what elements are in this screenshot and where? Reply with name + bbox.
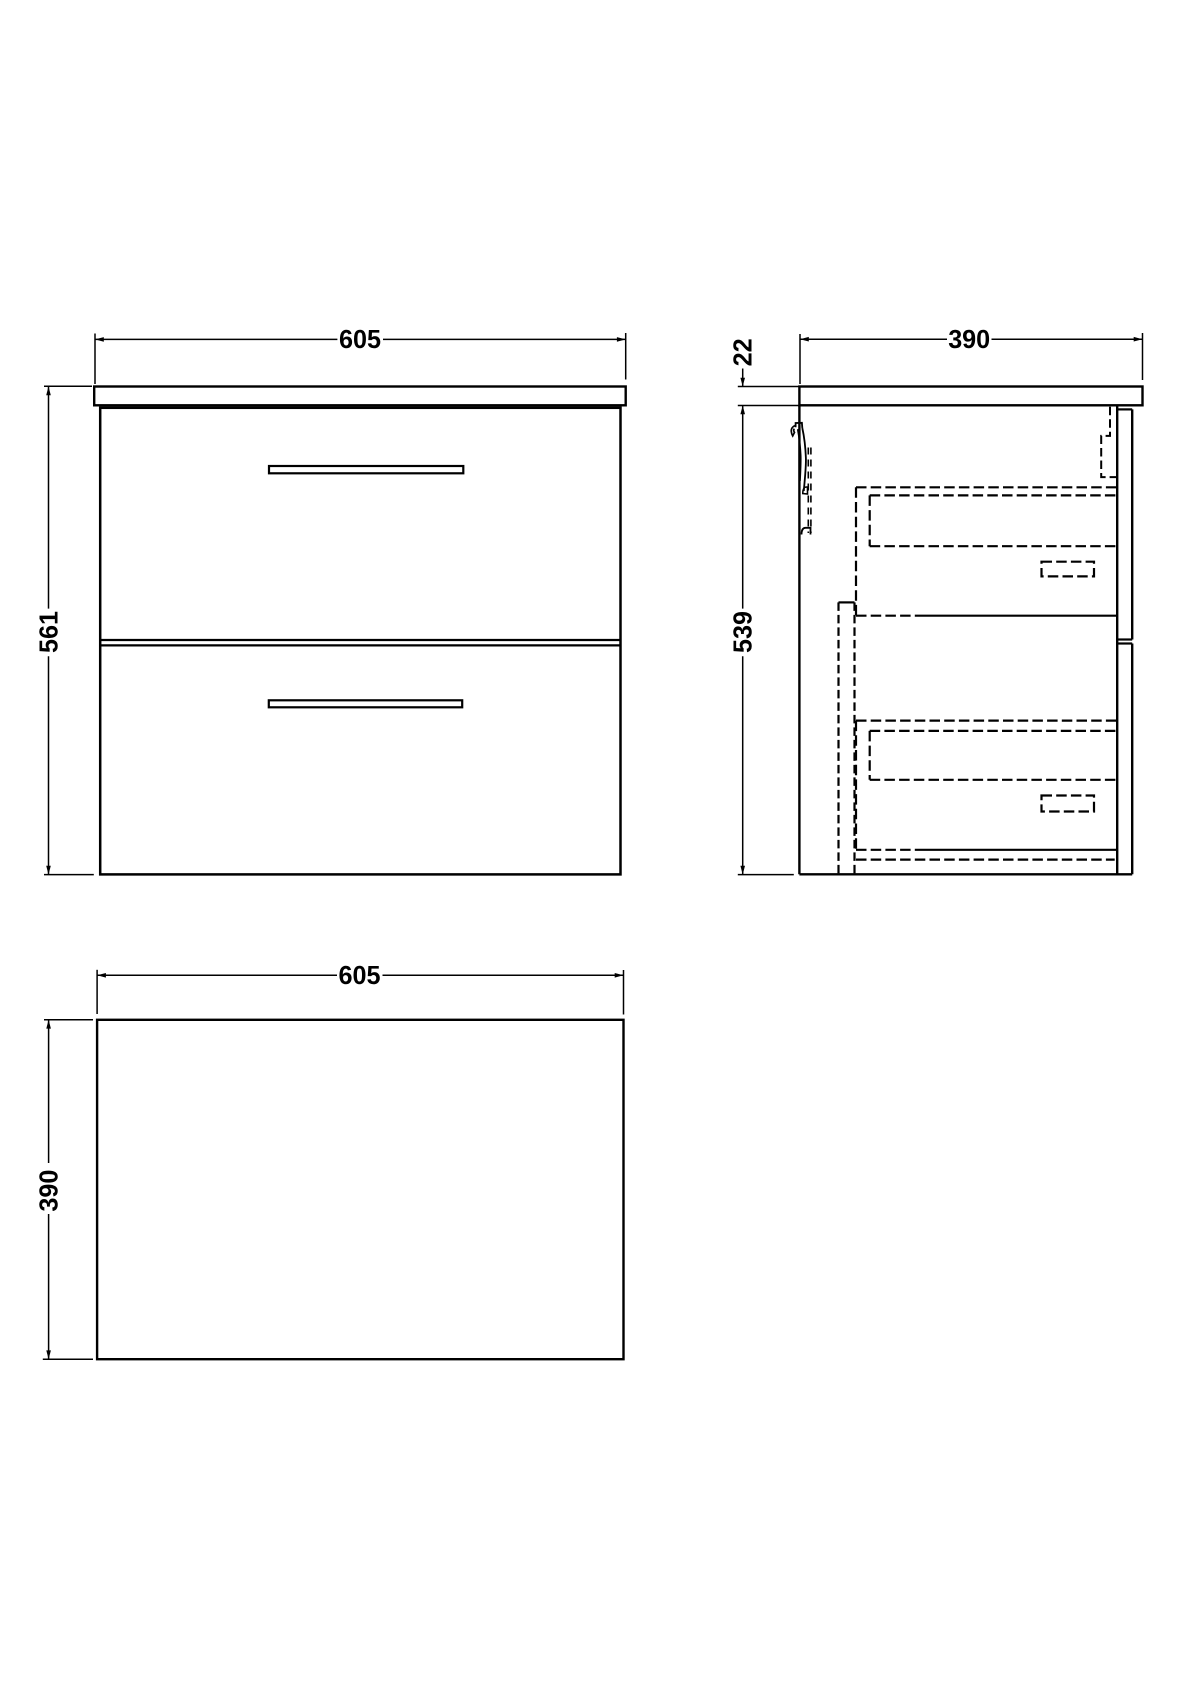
svg-text:390: 390: [34, 1170, 64, 1212]
svg-text:539: 539: [728, 611, 758, 653]
svg-text:605: 605: [339, 324, 381, 354]
svg-text:390: 390: [948, 324, 990, 354]
svg-text:22: 22: [728, 338, 758, 366]
svg-text:561: 561: [33, 611, 63, 653]
svg-text:605: 605: [339, 960, 381, 990]
